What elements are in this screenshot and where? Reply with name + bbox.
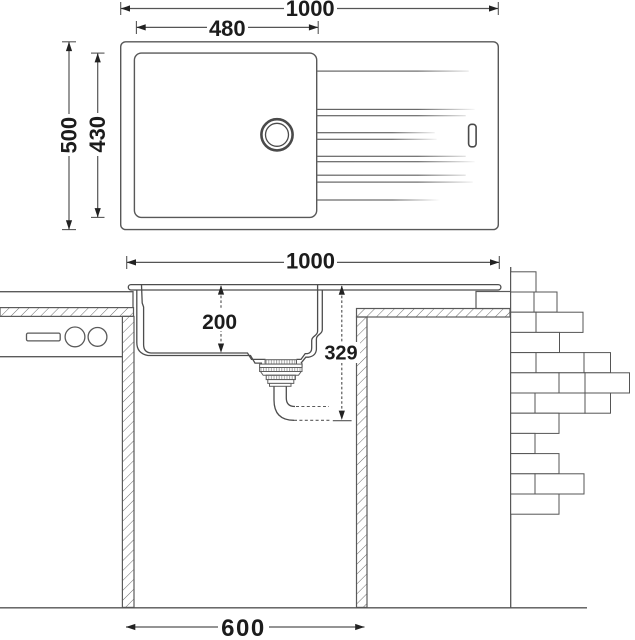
svg-text:329: 329 bbox=[324, 343, 357, 365]
svg-text:200: 200 bbox=[202, 311, 237, 334]
svg-text:1000: 1000 bbox=[286, 249, 335, 274]
svg-text:480: 480 bbox=[209, 16, 246, 41]
svg-text:500: 500 bbox=[57, 117, 82, 154]
svg-text:1000: 1000 bbox=[286, 0, 335, 21]
svg-text:430: 430 bbox=[85, 116, 110, 153]
svg-text:600: 600 bbox=[221, 615, 266, 640]
